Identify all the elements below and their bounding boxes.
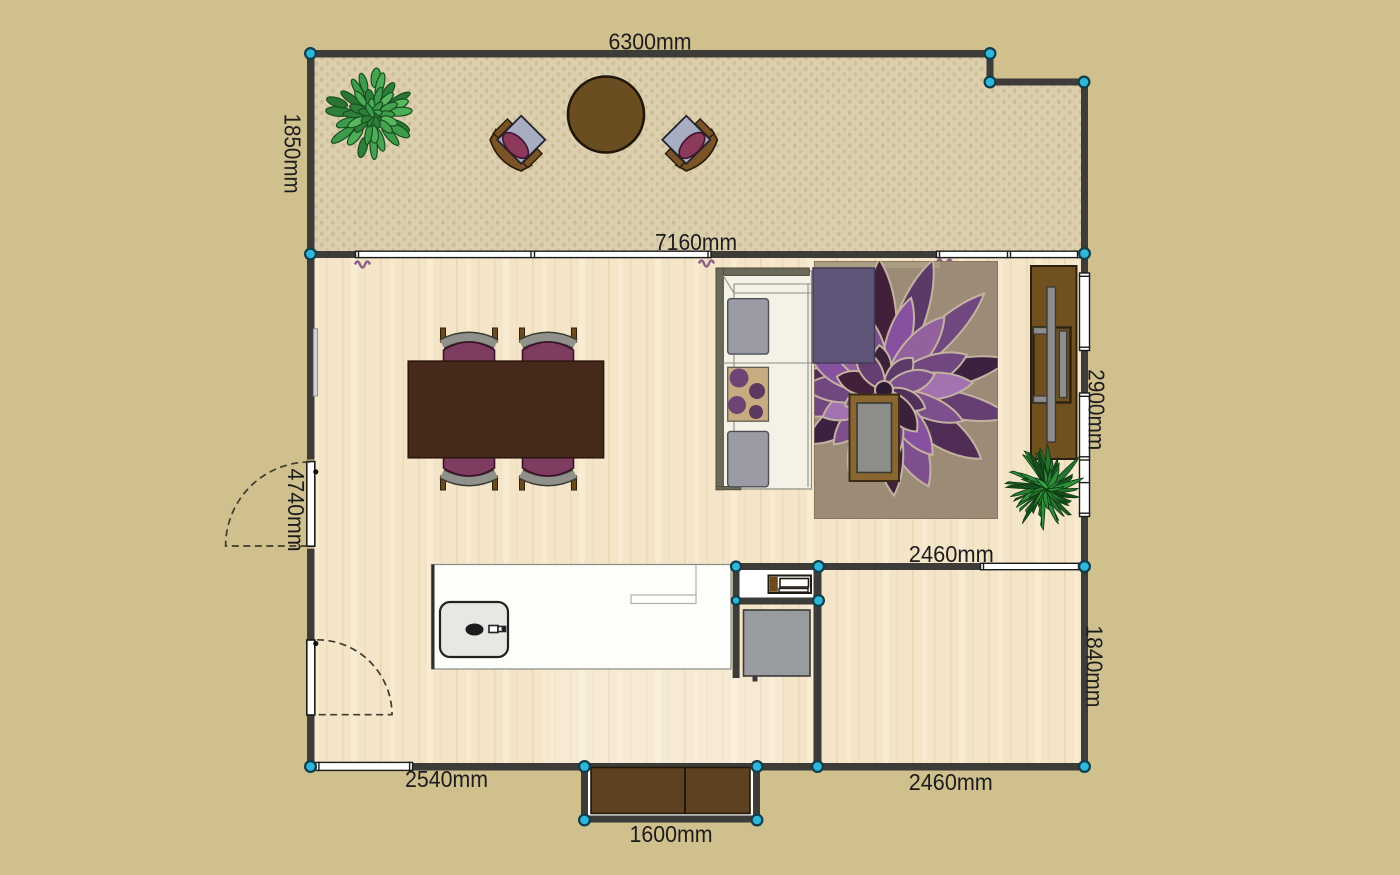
svg-text:6300mm: 6300mm <box>609 29 692 55</box>
svg-text:7160mm: 7160mm <box>655 229 737 255</box>
svg-text:1850mm: 1850mm <box>280 114 306 194</box>
svg-text:2460mm: 2460mm <box>909 769 993 795</box>
svg-text:2900mm: 2900mm <box>1084 369 1110 450</box>
svg-text:1600mm: 1600mm <box>630 821 713 847</box>
svg-text:1840mm: 1840mm <box>1082 625 1108 707</box>
svg-text:4740mm: 4740mm <box>283 469 309 552</box>
svg-text:2460mm: 2460mm <box>909 541 994 567</box>
svg-text:2540mm: 2540mm <box>405 766 488 792</box>
